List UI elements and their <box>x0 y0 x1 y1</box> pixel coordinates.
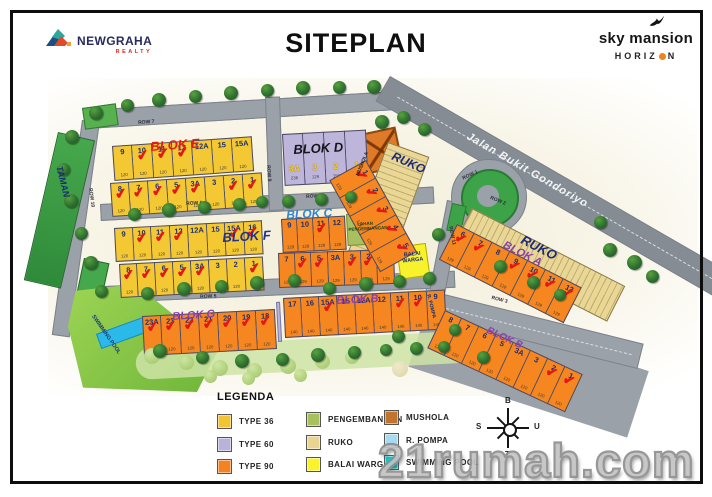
lot-number: 3 <box>212 179 217 187</box>
tree-icon <box>256 196 268 208</box>
lot: 19120✔ <box>237 310 258 351</box>
lot-number: 9 <box>433 293 438 301</box>
sold-checkmark: ✔ <box>170 181 184 197</box>
legend-item: MUSHOLA <box>384 410 449 425</box>
tree-icon <box>554 289 566 301</box>
lot: 6120✔ <box>155 261 175 296</box>
tree-icon <box>646 270 659 283</box>
lot-size: 140 <box>290 331 297 336</box>
lot-number: 9 <box>120 148 125 156</box>
lot-size: 120 <box>158 253 165 258</box>
lot-size: 120 <box>502 376 510 383</box>
tree-icon <box>367 80 381 94</box>
sold-checkmark: ✔ <box>153 229 167 245</box>
compass-right: U <box>534 422 540 431</box>
tree-icon <box>89 106 103 120</box>
tree-icon <box>311 348 325 362</box>
lot: 10129 <box>297 217 315 252</box>
legend-item: TYPE 36 <box>217 414 274 429</box>
tree-icon <box>215 280 228 293</box>
legend-label: TYPE 36 <box>239 417 274 426</box>
sold-checkmark: ✔ <box>135 147 149 163</box>
compass-left: S <box>476 422 481 431</box>
sold-checkmark: ✔ <box>122 267 136 283</box>
lot-size: 129 <box>382 278 389 282</box>
tree-icon <box>196 351 209 364</box>
lot-number: 17 <box>288 300 297 308</box>
tree-icon <box>359 277 373 291</box>
tree-icon <box>198 201 211 214</box>
tree-icon <box>162 203 176 217</box>
lot-size: 129 <box>334 243 341 248</box>
lot-size: 236 <box>291 177 298 182</box>
legend-item: TYPE 60 <box>217 437 274 452</box>
lot-size: 120 <box>139 254 146 259</box>
legend-swatch <box>217 459 232 474</box>
lot-number: 15 <box>211 225 220 233</box>
tree-icon <box>449 324 461 336</box>
lot: 9129 <box>281 218 299 253</box>
legend-swatch <box>306 435 321 450</box>
sold-checkmark: ✔ <box>247 260 261 276</box>
lot-number: 3 <box>533 356 540 365</box>
tree-icon <box>84 256 98 270</box>
project-subtitle-left: HORIZ <box>615 51 658 61</box>
tree-icon <box>323 282 336 295</box>
legend-swatch <box>384 410 399 425</box>
legend-label: RUKO <box>328 438 353 447</box>
lot-number: 15A <box>235 139 249 147</box>
tree-icon <box>276 353 289 366</box>
tree-icon <box>95 285 108 298</box>
lot-size: 120 <box>200 168 207 173</box>
lot-size: 120 <box>225 345 232 350</box>
tree-icon <box>294 369 307 382</box>
lot-size: 140 <box>380 326 387 331</box>
sold-checkmark: ✔ <box>245 176 259 192</box>
lot: 20120✔ <box>218 311 239 352</box>
lot-number: 3A <box>288 164 300 174</box>
tree-icon <box>477 351 490 364</box>
lot-size: 120 <box>161 289 168 294</box>
lot-size: 120 <box>160 171 167 176</box>
tree-icon <box>152 93 166 107</box>
sold-checkmark: ✔ <box>259 313 273 329</box>
tree-icon <box>282 195 295 208</box>
lot-size: 129 <box>517 293 525 300</box>
sold-checkmark: ✔ <box>393 295 407 311</box>
lot: 15A120 <box>232 136 254 172</box>
lot-size: 129 <box>316 280 323 284</box>
project-name: sky mansion <box>598 30 694 47</box>
tree-icon <box>432 228 445 241</box>
tree-icon <box>261 84 274 97</box>
tree-icon <box>348 346 361 359</box>
tree-icon <box>65 130 79 144</box>
lot-size: 129 <box>365 238 372 246</box>
lot-size: 140 <box>326 329 333 334</box>
lot-size: 129 <box>446 257 454 264</box>
block-label: BLOK F <box>222 228 271 244</box>
lot-size: 120 <box>244 344 251 349</box>
tree-icon <box>189 90 202 103</box>
road-label: ROW 9 <box>265 165 271 182</box>
tree-icon <box>397 111 410 124</box>
sold-checkmark: ✔ <box>221 315 235 331</box>
tree-icon <box>224 86 238 100</box>
lot-size: 129 <box>534 302 542 309</box>
lot-size: 120 <box>140 172 147 177</box>
lot-size: 120 <box>120 173 127 178</box>
lot-number: 2 <box>333 162 338 171</box>
lot-size: 120 <box>187 347 194 352</box>
sold-checkmark: ✔ <box>561 371 577 388</box>
road-label: ROW 5 <box>200 294 217 300</box>
lot-size: 129 <box>312 176 319 181</box>
legend-swatch <box>306 412 321 427</box>
lot: 11129✔ <box>313 216 331 251</box>
sold-checkmark: ✔ <box>544 363 560 380</box>
tree-icon <box>392 361 408 377</box>
tree-icon <box>296 81 310 95</box>
lot-size: 120 <box>519 385 527 392</box>
lot: 15120 <box>212 138 234 174</box>
tree-icon <box>392 330 405 343</box>
lot-number: 3 <box>312 163 317 172</box>
lot-number: 3A <box>331 254 341 262</box>
lot-size: 129 <box>302 245 309 250</box>
lot-size: 120 <box>250 248 257 253</box>
lot-size: 120 <box>121 255 128 260</box>
lot: 3A129 <box>327 251 345 287</box>
lot-size: 120 <box>450 352 458 359</box>
lot-size: 120 <box>206 346 213 351</box>
legend-swatch <box>306 457 321 472</box>
lot: 12129 <box>329 216 347 251</box>
lot-size: 129 <box>318 244 325 249</box>
tree-icon <box>410 342 423 355</box>
project-subtitle-right: N <box>668 51 678 61</box>
lot-number: 2 <box>233 261 238 269</box>
compass-top: B <box>505 396 511 405</box>
lot: 5129✔ <box>311 251 329 287</box>
lot-size: 120 <box>118 209 125 214</box>
sold-checkmark: ✔ <box>175 264 189 280</box>
lot-size: 129 <box>287 246 294 251</box>
lot-size: 140 <box>398 325 405 330</box>
lot-size: 120 <box>168 348 175 353</box>
legend-label: TYPE 90 <box>239 462 274 471</box>
lot-number: 9 <box>287 221 292 229</box>
tree-icon <box>527 276 540 289</box>
lot-number: 3 <box>215 262 220 270</box>
lot-size: 129 <box>375 256 382 264</box>
tree-icon <box>75 227 88 240</box>
sold-checkmark: ✔ <box>189 180 203 196</box>
lot-number: 10 <box>300 221 309 229</box>
lot-number: 9 <box>121 230 126 238</box>
tree-icon <box>204 370 217 383</box>
sold-checkmark: ✔ <box>113 185 127 201</box>
sold-checkmark: ✔ <box>345 254 359 269</box>
lot-size: 120 <box>468 360 476 367</box>
lot-size: 120 <box>212 203 219 208</box>
tree-icon <box>438 341 450 353</box>
tree-icon <box>627 255 642 270</box>
sold-checkmark: ✔ <box>321 299 335 315</box>
sold-checkmark: ✔ <box>312 255 326 270</box>
lot: 8120✔ <box>119 263 139 298</box>
tree-icon <box>141 287 154 300</box>
legend-swatch <box>217 414 232 429</box>
lot-size: 140 <box>362 327 369 332</box>
block-label: BLOK C <box>286 207 333 221</box>
lot: 10120✔ <box>132 226 152 261</box>
lot: 2120 <box>227 257 247 292</box>
sold-checkmark: ✔ <box>411 294 425 310</box>
project-subtitle: HORIZ N <box>598 51 694 61</box>
lot-size: 140 <box>308 330 315 335</box>
sold-checkmark: ✔ <box>226 177 240 193</box>
lot: 11140✔ <box>391 291 411 332</box>
sold-checkmark: ✔ <box>139 266 153 282</box>
lot: 12120✔ <box>169 224 189 259</box>
tree-icon <box>250 276 264 290</box>
lot: 17140 <box>283 297 303 338</box>
tree-icon <box>121 99 134 112</box>
sold-checkmark: ✔ <box>157 265 171 281</box>
sold-checkmark: ✔ <box>172 228 186 244</box>
lot-size: 129 <box>463 266 471 273</box>
tree-icon <box>594 216 607 229</box>
sold-checkmark: ✔ <box>135 230 149 246</box>
tree-icon <box>333 81 346 94</box>
tree-icon <box>380 344 392 356</box>
lot: 12A120 <box>188 223 208 258</box>
tree-icon <box>153 344 167 358</box>
lot-number: 12A <box>190 226 204 234</box>
siteplan-page: NEWGRAHA REALTY SITEPLAN sky mansion HOR… <box>0 0 712 497</box>
lot-size: 120 <box>195 251 202 256</box>
tree-icon <box>423 272 436 285</box>
lot-size: 129 <box>335 183 342 191</box>
lot-size: 129 <box>300 280 307 284</box>
lot: 9120 <box>114 227 134 262</box>
legend-label: MUSHOLA <box>406 413 449 422</box>
tree-icon <box>315 193 328 206</box>
tree-icon <box>179 355 194 370</box>
lot: 9120 <box>112 145 134 181</box>
tree-icon <box>494 260 507 273</box>
tree-icon <box>233 198 246 211</box>
sold-checkmark: ✔ <box>193 263 207 279</box>
lot-number: 12 <box>332 219 341 227</box>
sold-checkmark: ✔ <box>470 239 486 256</box>
lot-number: 15 <box>217 141 226 149</box>
tree-icon <box>235 354 249 368</box>
lahan-pengembangan-label: LAHAN PENGEMBANGAN <box>348 220 382 232</box>
block-label: BLOK D <box>293 140 343 156</box>
lot-size: 129 <box>349 279 356 283</box>
legend-title: LEGENDA <box>217 391 274 403</box>
lot: 16140 <box>301 296 321 337</box>
legend-swatch <box>217 437 232 452</box>
skymansion-logo: sky mansion HORIZ N <box>598 30 694 61</box>
tree-icon <box>603 243 617 257</box>
sold-checkmark: ✔ <box>151 183 165 199</box>
tree-icon <box>288 274 301 287</box>
lot-size: 120 <box>176 252 183 257</box>
lot-size: 120 <box>231 249 238 254</box>
lot-size: 120 <box>233 285 240 290</box>
lot-size: 140 <box>416 324 423 329</box>
sold-checkmark: ✔ <box>296 255 310 270</box>
lot-size: 120 <box>554 401 562 408</box>
lot-size: 129 <box>499 284 507 291</box>
sold-checkmark: ✔ <box>240 314 254 330</box>
sold-checkmark: ✔ <box>314 220 328 236</box>
legend-label: TYPE 60 <box>239 440 274 449</box>
lot-size: 129 <box>552 311 560 318</box>
lot: 3A120✔ <box>191 259 211 294</box>
watermark: 21rumah.com <box>378 433 695 488</box>
legend-item: TYPE 90 <box>217 459 274 474</box>
sold-checkmark: ✔ <box>145 319 159 335</box>
lot-size: 120 <box>197 287 204 292</box>
lot-size: 120 <box>126 291 133 296</box>
lot-size: 120 <box>213 250 220 255</box>
tree-icon <box>242 372 255 385</box>
tree-icon <box>393 275 406 288</box>
lot: 11120✔ <box>151 225 171 260</box>
lot-size: 120 <box>263 343 270 348</box>
lot: 18120✔ <box>256 309 277 350</box>
lot-size: 140 <box>344 328 351 333</box>
sold-checkmark: ✔ <box>132 184 146 200</box>
tree-icon <box>177 282 191 296</box>
sun-icon <box>659 53 666 60</box>
lot-size: 120 <box>220 166 227 171</box>
lot-number: 7 <box>284 256 288 264</box>
tree-icon <box>128 208 141 221</box>
lot-number: 7 <box>464 324 471 333</box>
block-label: BLOK E <box>150 137 200 153</box>
lot-size: 120 <box>180 169 187 174</box>
bird-icon <box>648 14 666 28</box>
tree-icon <box>418 123 431 136</box>
tree-icon <box>375 115 389 129</box>
lot-size: 120 <box>485 368 493 375</box>
lot-size: 120 <box>240 165 247 170</box>
legend-item: RUKO <box>306 435 353 450</box>
lot-number: 16 <box>305 299 314 307</box>
block-label: BLOK B <box>336 294 379 307</box>
lot-number: 12 <box>377 296 386 304</box>
tree-icon <box>345 191 357 203</box>
lot-size: 129 <box>481 275 489 282</box>
